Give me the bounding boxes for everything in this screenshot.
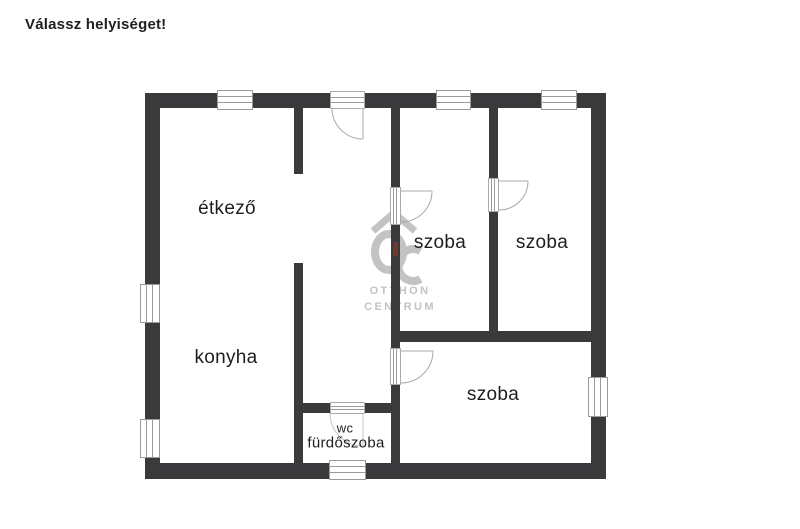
- door: [390, 348, 401, 385]
- room-label-etkezo[interactable]: étkező: [198, 198, 256, 220]
- room-label-wc[interactable]: wc: [337, 421, 354, 436]
- door: [330, 91, 365, 109]
- wall: [294, 263, 303, 463]
- window: [140, 284, 160, 323]
- room-label-konyha[interactable]: konyha: [194, 347, 257, 369]
- door: [330, 402, 365, 414]
- door-swing-arc: [332, 108, 363, 139]
- wall: [145, 93, 606, 108]
- wall: [365, 403, 391, 413]
- door: [390, 187, 401, 225]
- wall: [591, 93, 606, 479]
- wall: [294, 108, 303, 174]
- wall: [303, 403, 330, 413]
- wall: [489, 108, 498, 178]
- window: [436, 90, 471, 110]
- room-label-furdoszoba[interactable]: fürdőszoba: [307, 435, 384, 452]
- door-swing-arc: [401, 351, 433, 383]
- wall: [391, 385, 400, 463]
- door: [488, 178, 499, 212]
- watermark-accent: [393, 242, 398, 256]
- window: [588, 377, 608, 417]
- wall: [145, 463, 606, 479]
- wall: [489, 212, 498, 331]
- window: [140, 419, 160, 458]
- window: [541, 90, 577, 110]
- watermark-text-otthon: OTTHON: [354, 285, 446, 297]
- wall: [391, 331, 591, 342]
- room-label-szoba-3[interactable]: szoba: [467, 384, 519, 406]
- room-label-szoba-1[interactable]: szoba: [414, 232, 466, 254]
- room-label-szoba-2[interactable]: szoba: [516, 232, 568, 254]
- wall: [391, 108, 400, 188]
- watermark-text-centrum: CENTRUM: [354, 301, 446, 313]
- window: [217, 90, 253, 110]
- window: [329, 460, 366, 480]
- door-swing-arc: [499, 181, 528, 210]
